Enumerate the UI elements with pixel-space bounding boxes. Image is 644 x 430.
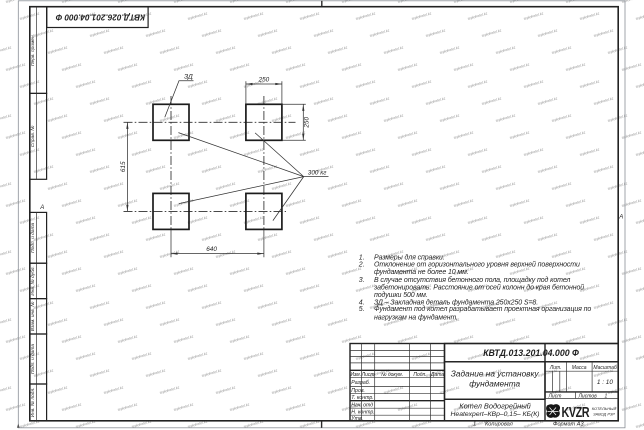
svg-text:Листов: Листов <box>578 393 598 399</box>
svg-text:Пров.: Пров. <box>351 388 365 394</box>
svg-text:Перв. примен.: Перв. примен. <box>30 34 36 66</box>
svg-text:В случае отсутствия бетонного: В случае отсутствия бетонного пола, площ… <box>374 276 570 284</box>
svg-text:250: 250 <box>258 77 270 84</box>
svg-text:1: 1 <box>473 422 476 428</box>
svg-text:640: 640 <box>206 246 217 253</box>
svg-text:Н. контр.: Н. контр. <box>351 410 374 416</box>
svg-text:Лит.: Лит. <box>549 365 562 371</box>
svg-text:3.: 3. <box>359 277 365 284</box>
svg-text:Изм.: Изм. <box>350 372 361 378</box>
svg-text:Инв. № подл.: Инв. № подл. <box>30 388 36 418</box>
svg-text:Дата: Дата <box>430 372 444 378</box>
svg-text:Формат А3: Формат А3 <box>553 422 584 428</box>
svg-text:Heatexpert–КВр–0,15– КБ(К): Heatexpert–КВр–0,15– КБ(К) <box>451 411 540 418</box>
svg-text:Т. контр.: Т. контр. <box>351 395 373 401</box>
svg-text:2.: 2. <box>358 262 365 269</box>
svg-text:Подп.: Подп. <box>413 372 426 378</box>
svg-text:КОТЕЛЬНЫЙ: КОТЕЛЬНЫЙ <box>592 406 617 411</box>
svg-text:фундамента: фундамента <box>469 379 520 389</box>
svg-text:Нач. отд: Нач. отд <box>351 402 373 408</box>
svg-text:Размеры для справки.: Размеры для справки. <box>374 254 445 262</box>
svg-text:615: 615 <box>120 161 127 172</box>
svg-text:А: А <box>618 215 623 221</box>
svg-text:ЗАВОД РЗР: ЗАВОД РЗР <box>593 412 615 417</box>
svg-text:5.: 5. <box>359 306 365 313</box>
svg-text:фундамента не более 10 мм.: фундамента не более 10 мм. <box>374 268 469 276</box>
svg-text:Отклонение от горизонтального: Отклонение от горизонтального уровня вер… <box>374 261 580 269</box>
svg-text:Задание на установку: Задание на установку <box>451 368 540 378</box>
svg-text:А: А <box>39 205 44 211</box>
svg-text:Справ. №: Справ. № <box>30 125 36 147</box>
svg-text:Копировал: Копировал <box>485 422 514 428</box>
svg-text:Масштаб: Масштаб <box>593 365 617 371</box>
svg-text:Взам. инв. №: Взам. инв. № <box>30 301 36 331</box>
svg-text:Лист: Лист <box>548 393 562 399</box>
svg-text:Инв. № дубл.: Инв. № дубл. <box>30 266 36 296</box>
svg-text:ЗД: ЗД <box>184 73 193 80</box>
svg-text:ЗД – Закладная деталь фундамен: ЗД – Закладная деталь фундамента 250х250… <box>374 298 538 306</box>
svg-text:Подп. и дата: Подп. и дата <box>30 222 36 252</box>
svg-text:КВТД.013.201.04.000 Ф: КВТД.013.201.04.000 Ф <box>483 348 579 358</box>
svg-text:KVZR: KVZR <box>562 403 590 420</box>
svg-text:Фундамент под котел разрабатыв: Фундамент под котел разрабатывает проект… <box>374 305 591 313</box>
svg-text:Масса: Масса <box>572 365 587 371</box>
svg-text:1.: 1. <box>359 255 365 262</box>
svg-text:1 : 10: 1 : 10 <box>597 379 613 386</box>
svg-text:Лист: Лист <box>361 372 375 378</box>
svg-text:Котел Водогрейный: Котел Водогрейный <box>459 402 531 411</box>
svg-text:300 кг: 300 кг <box>308 169 327 176</box>
svg-text:нагрузкам на фундамент.: нагрузкам на фундамент. <box>374 313 458 321</box>
svg-text:Подп. и дата: Подп. и дата <box>30 344 36 374</box>
svg-text:1: 1 <box>605 393 608 399</box>
svg-text:забетонировать. Расстояние от: забетонировать. Расстояние от осей колон… <box>373 284 584 292</box>
svg-text:№ докум.: № докум. <box>381 372 403 378</box>
svg-text:Разраб.: Разраб. <box>351 380 370 386</box>
svg-text:250: 250 <box>303 117 310 129</box>
svg-text:КВТД.026.201.04.000 Ф: КВТД.026.201.04.000 Ф <box>55 12 145 21</box>
svg-text:подушки 500 мм.: подушки 500 мм. <box>374 291 428 299</box>
svg-text:Утв.: Утв. <box>351 416 363 422</box>
